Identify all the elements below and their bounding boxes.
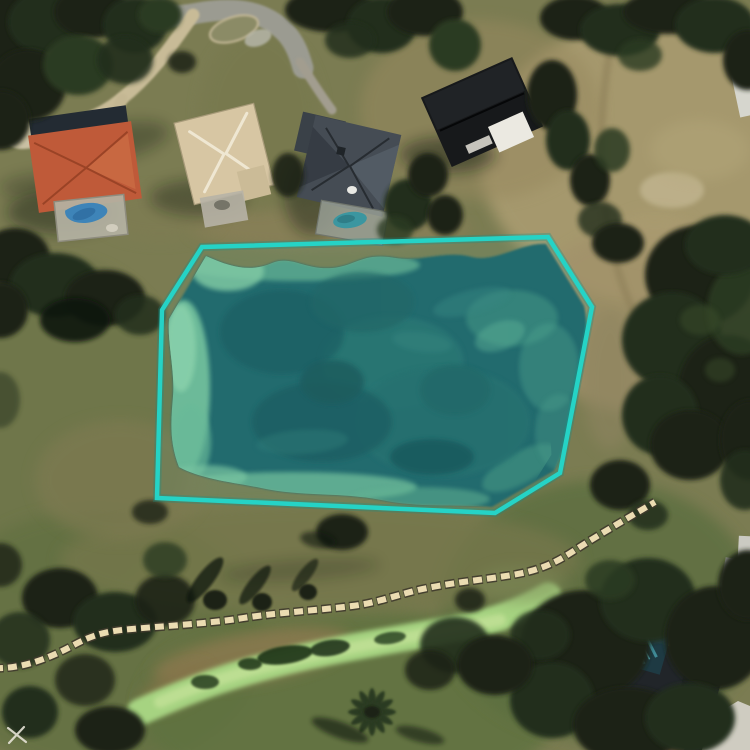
terrain-shape	[252, 593, 272, 611]
terrain-shape	[168, 51, 196, 73]
terrain-shape	[40, 298, 110, 342]
terrain-shape	[97, 36, 153, 84]
terrain-shape	[680, 305, 720, 335]
terrain-shape	[650, 410, 730, 480]
terrain-shape	[594, 128, 630, 172]
terrain-shape	[364, 706, 380, 718]
terrain-shape	[427, 195, 463, 235]
map-canvas[interactable]	[0, 0, 750, 750]
terrain-shape	[143, 542, 187, 578]
terrain-shape	[705, 358, 735, 382]
terrain-shape	[408, 153, 448, 197]
terrain-shape	[455, 588, 485, 612]
terrain-shape	[272, 153, 304, 197]
terrain-shape	[618, 39, 662, 71]
terrain-shape	[191, 675, 219, 689]
terrain-shape	[405, 650, 455, 690]
terrain-shape	[55, 654, 115, 706]
terrain-shape	[592, 223, 644, 263]
terrain-shape	[299, 584, 317, 600]
terrain-shape	[585, 560, 635, 600]
terrain-shape	[135, 574, 195, 626]
terrain-shape	[203, 590, 227, 610]
parcel-polygon[interactable]	[157, 237, 592, 513]
terrain-shape	[214, 200, 230, 210]
terrain-shape	[650, 120, 750, 180]
terrain-shape	[429, 19, 481, 71]
terrain-shape	[457, 635, 533, 695]
terrain-shape	[132, 500, 168, 524]
terrain-shape	[325, 22, 375, 58]
terrain-shape	[347, 186, 357, 194]
aerial-imagery	[0, 0, 750, 750]
terrain-shape	[106, 224, 118, 232]
terrain-shape	[645, 683, 735, 750]
terrain-shape	[238, 658, 262, 670]
